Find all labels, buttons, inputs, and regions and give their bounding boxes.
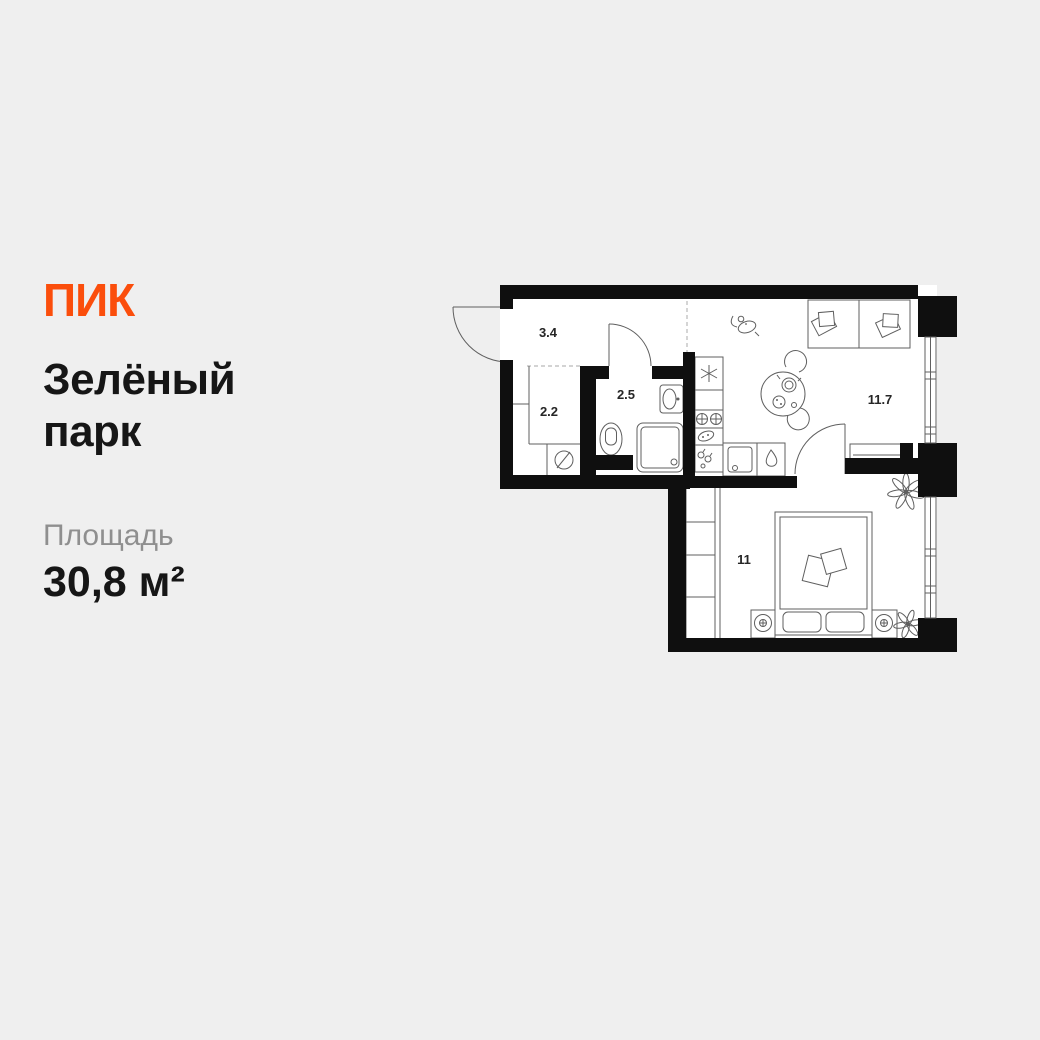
room-label-bedroom: 11 xyxy=(737,552,751,567)
room-label-storage: 2.2 xyxy=(540,404,558,419)
area-label: Площадь xyxy=(43,520,423,552)
window xyxy=(925,337,936,443)
project-title-line1: Зелёный xyxy=(43,355,235,404)
room-label-bathroom: 2.5 xyxy=(617,387,635,402)
room-label-kitchen-living: 11.7 xyxy=(868,392,893,407)
listing-card: 3.4 2.2 2.5 11.7 11 ПИК Зелёный парк Пло… xyxy=(0,0,1040,1040)
area-value: 30,8 м² xyxy=(43,560,423,604)
window xyxy=(925,497,936,618)
room-label-hallway: 3.4 xyxy=(539,325,558,340)
project-title-line2: парк xyxy=(43,407,141,456)
pik-logo: ПИК xyxy=(43,284,423,316)
entrance-door xyxy=(453,307,508,362)
info-panel: ПИК Зелёный парк Площадь 30,8 м² xyxy=(43,284,423,604)
project-title: Зелёный парк xyxy=(43,354,423,458)
